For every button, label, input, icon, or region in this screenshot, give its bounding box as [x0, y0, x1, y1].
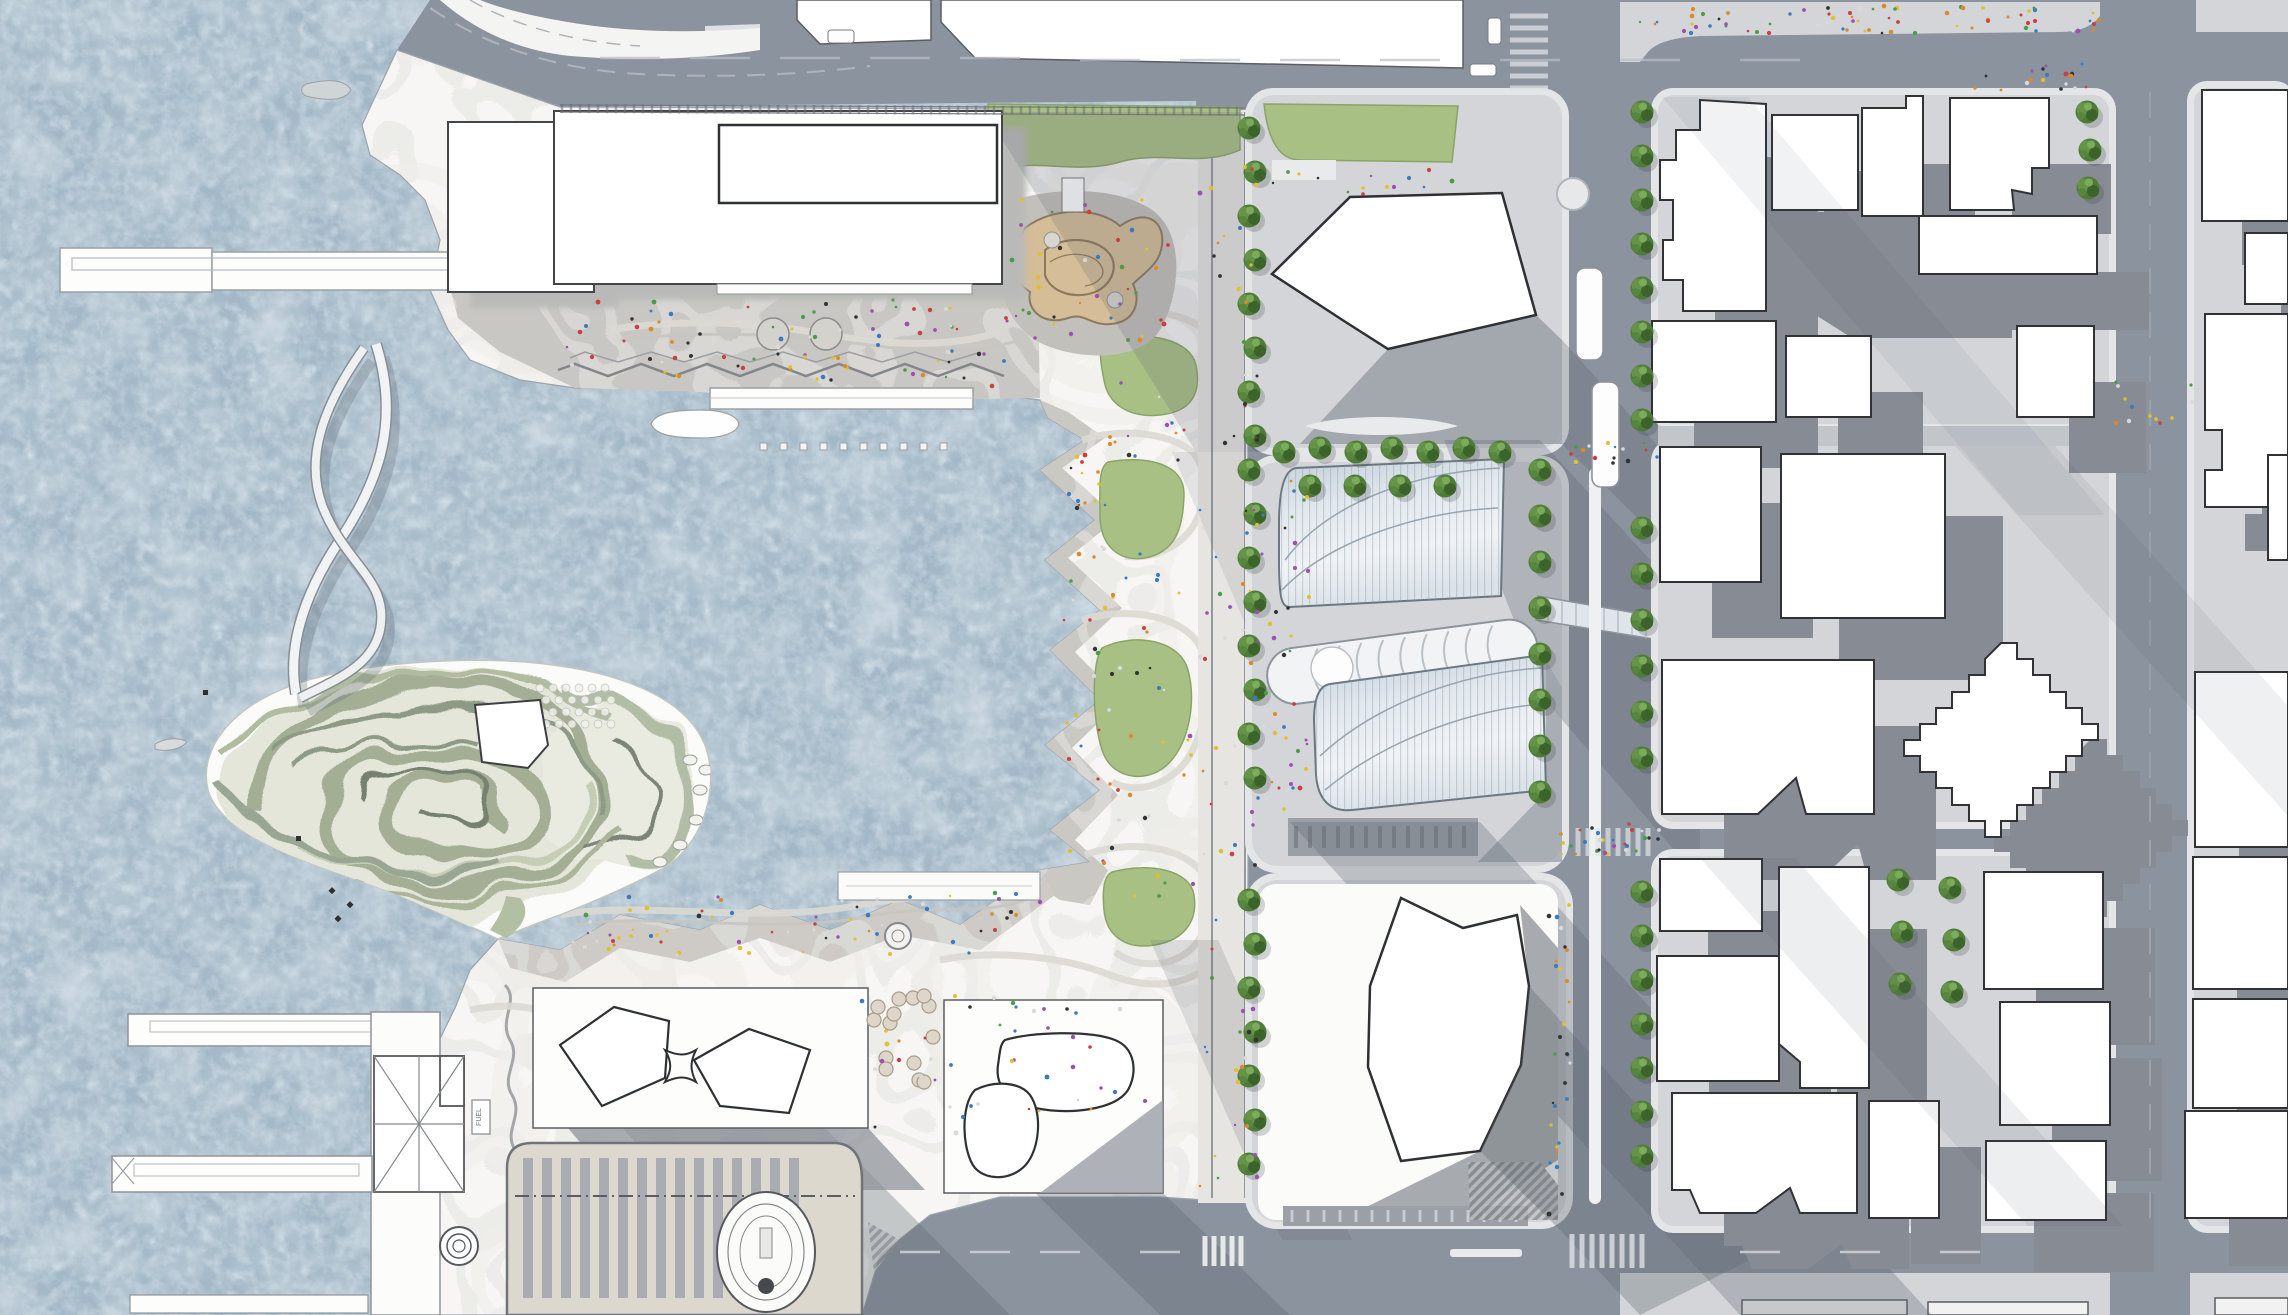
svg-text:FUEL: FUEL — [476, 1108, 483, 1126]
